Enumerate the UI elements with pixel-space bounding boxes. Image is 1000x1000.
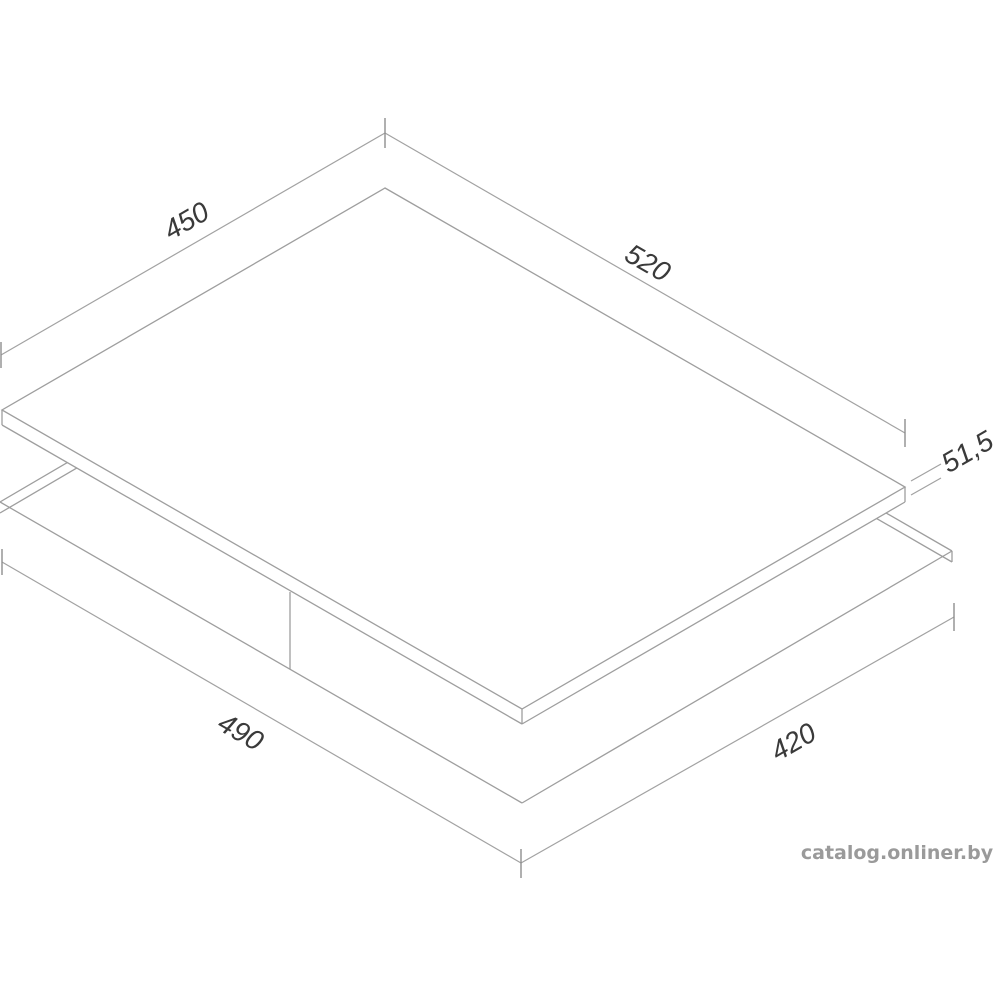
cutout-width-label: 490 — [213, 707, 269, 757]
cutout-depth-label: 420 — [765, 716, 821, 766]
height-extension-line-lower — [911, 478, 941, 495]
technical-drawing: 450 520 51,5 490 420 catalog.onliner.by — [0, 0, 1000, 1000]
panel-outline — [2, 188, 905, 724]
panel-height-label: 51,5 — [936, 425, 999, 479]
panel-depth-label: 520 — [620, 238, 676, 288]
height-extension-line-upper — [911, 464, 941, 481]
panel-width-label: 450 — [158, 195, 214, 245]
drawing-canvas: 450 520 51,5 490 420 catalog.onliner.by — [0, 0, 1000, 1000]
watermark: catalog.onliner.by — [801, 842, 994, 864]
panel-body-fill — [2, 188, 905, 724]
